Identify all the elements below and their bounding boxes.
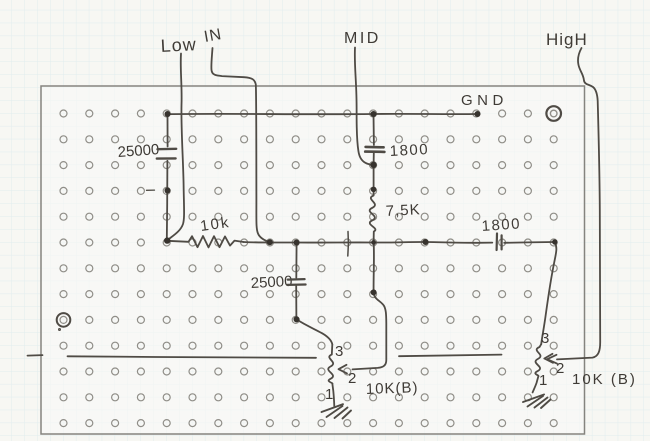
svg-text:10K (B): 10K (B) bbox=[572, 371, 637, 388]
svg-text:7,5K: 7,5K bbox=[385, 201, 421, 220]
svg-text:3: 3 bbox=[541, 330, 550, 347]
svg-text:3: 3 bbox=[335, 343, 344, 360]
svg-text:GND: GND bbox=[461, 92, 508, 109]
svg-text:Low: Low bbox=[160, 34, 197, 56]
svg-text:2: 2 bbox=[348, 370, 357, 387]
svg-text:1: 1 bbox=[539, 372, 548, 389]
svg-text:MID: MID bbox=[344, 30, 381, 47]
svg-text:25000: 25000 bbox=[250, 273, 293, 292]
svg-text:IN: IN bbox=[203, 26, 224, 46]
svg-text:25000: 25000 bbox=[117, 141, 160, 161]
svg-text:2: 2 bbox=[556, 360, 565, 377]
svg-text:10K(B): 10K(B) bbox=[366, 379, 419, 398]
svg-text:1800: 1800 bbox=[389, 141, 429, 160]
svg-text:1800: 1800 bbox=[481, 215, 521, 235]
svg-text:HigH: HigH bbox=[546, 30, 588, 49]
svg-text:1: 1 bbox=[325, 386, 334, 403]
